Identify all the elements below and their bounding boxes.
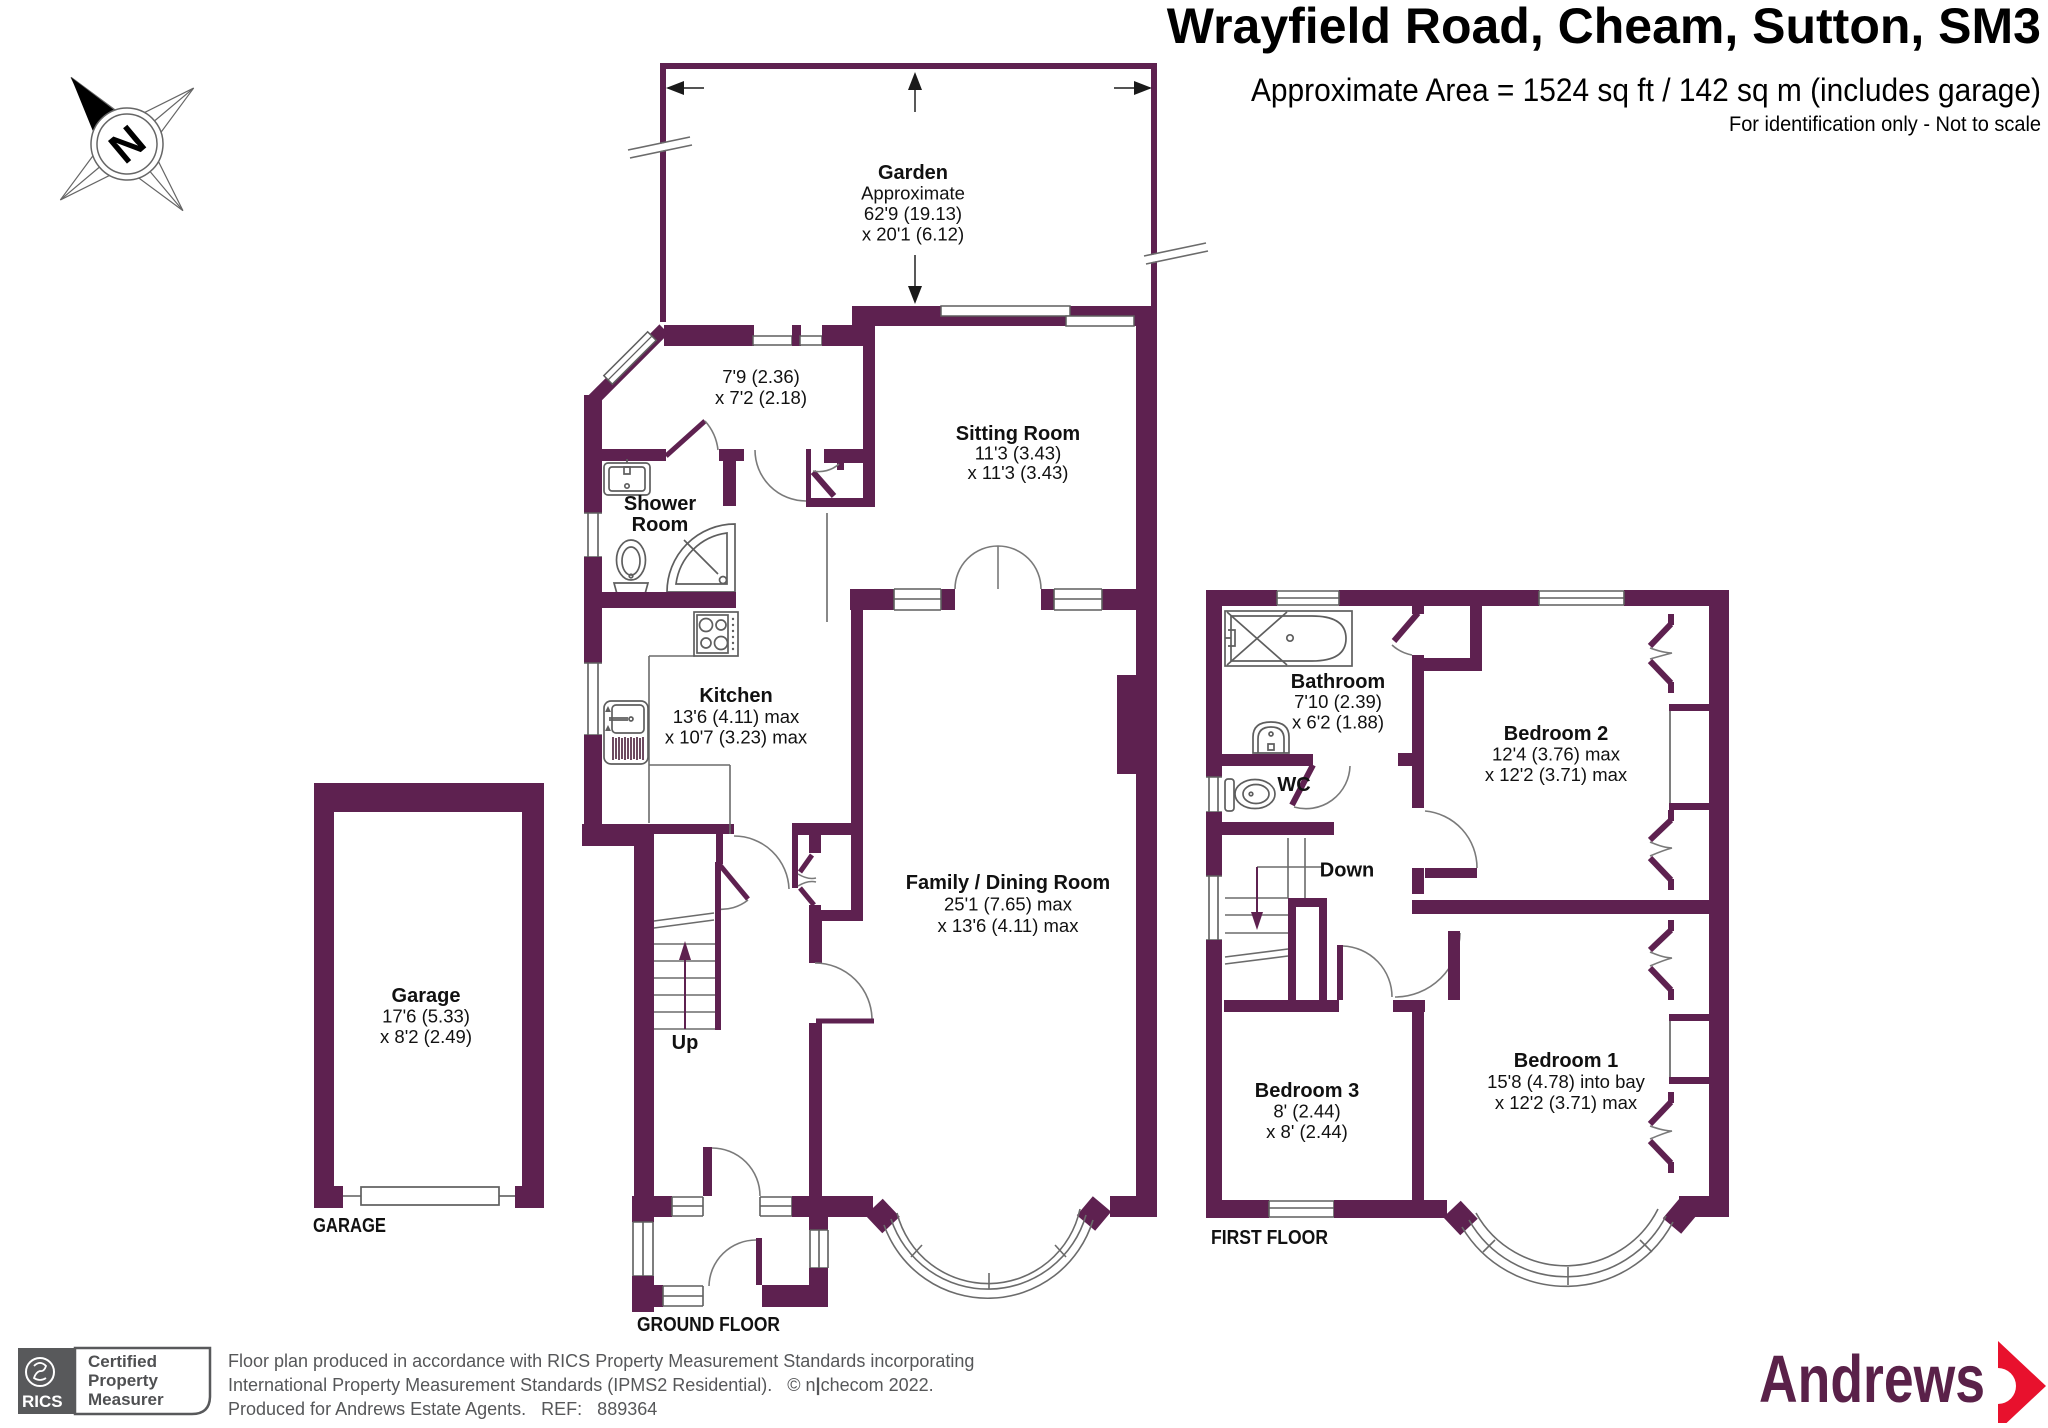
svg-text:15'8 (4.78) into bay: 15'8 (4.78) into bay [1487,1071,1646,1092]
svg-text:x 20'1 (6.12): x 20'1 (6.12) [862,224,964,245]
svg-text:Bedroom 1: Bedroom 1 [1514,1050,1618,1072]
svg-text:25'1 (7.65) max: 25'1 (7.65) max [944,894,1073,915]
svg-text:x 7'2 (2.18): x 7'2 (2.18) [715,387,807,408]
svg-text:x 12'2 (3.71) max: x 12'2 (3.71) max [1495,1092,1638,1113]
svg-text:WC: WC [1277,774,1310,796]
svg-text:7'10 (2.39): 7'10 (2.39) [1294,691,1382,712]
svg-text:Bathroom: Bathroom [1291,671,1385,693]
svg-text:Measurer: Measurer [88,1390,164,1409]
svg-text:Certified: Certified [88,1352,157,1371]
svg-text:11'3 (3.43): 11'3 (3.43) [975,443,1062,464]
svg-text:7'9 (2.36): 7'9 (2.36) [722,366,800,387]
svg-text:Approximate Area = 1524 sq ft: Approximate Area = 1524 sq ft / 142 sq m… [1251,72,2041,108]
svg-text:Floor plan produced in accorda: Floor plan produced in accordance with R… [228,1351,974,1371]
svg-text:17'6 (5.33): 17'6 (5.33) [382,1006,470,1027]
svg-text:Andrews: Andrews [1759,1342,1985,1417]
svg-text:x 8' (2.44): x 8' (2.44) [1266,1121,1348,1142]
svg-text:Garage: Garage [392,985,461,1007]
svg-text:12'4 (3.76) max: 12'4 (3.76) max [1492,744,1621,765]
svg-text:x 11'3 (3.43): x 11'3 (3.43) [968,462,1069,483]
svg-text:Property: Property [88,1371,158,1390]
svg-text:Kitchen: Kitchen [699,685,772,707]
svg-text:Bedroom 2: Bedroom 2 [1504,723,1608,745]
svg-text:Down: Down [1320,860,1374,882]
svg-text:x 6'2 (1.88): x 6'2 (1.88) [1292,712,1384,733]
svg-text:8' (2.44): 8' (2.44) [1273,1101,1340,1122]
svg-text:62'9 (19.13): 62'9 (19.13) [864,203,962,224]
svg-text:Family / Dining Room: Family / Dining Room [906,872,1110,894]
svg-text:International Property Measure: International Property Measurement Stand… [228,1375,934,1395]
svg-text:x 10'7 (3.23) max: x 10'7 (3.23) max [665,727,808,748]
svg-text:Garden: Garden [878,162,948,184]
svg-text:x 12'2 (3.71) max: x 12'2 (3.71) max [1485,764,1628,785]
svg-text:For identification only - Not: For identification only - Not to scale [1729,113,2041,136]
svg-text:GARAGE: GARAGE [313,1215,386,1237]
svg-text:Room: Room [632,514,689,536]
svg-text:GROUND FLOOR: GROUND FLOOR [637,1314,780,1336]
svg-text:Bedroom 3: Bedroom 3 [1255,1080,1359,1102]
svg-text:Wrayfield Road, Cheam, Sutton,: Wrayfield Road, Cheam, Sutton, SM3 [1167,0,2041,54]
svg-text:Approximate: Approximate [861,183,965,204]
svg-text:x 8'2 (2.49): x 8'2 (2.49) [380,1026,472,1047]
svg-text:Produced for Andrews Estate Ag: Produced for Andrews Estate Agents. REF:… [228,1399,657,1419]
svg-text:x 13'6 (4.11) max: x 13'6 (4.11) max [938,915,1080,936]
svg-text:RICS: RICS [22,1392,63,1411]
svg-text:FIRST FLOOR: FIRST FLOOR [1211,1227,1328,1249]
svg-text:Up: Up [672,1032,699,1054]
svg-text:13'6 (4.11) max: 13'6 (4.11) max [673,706,800,727]
svg-text:Shower: Shower [624,493,696,515]
